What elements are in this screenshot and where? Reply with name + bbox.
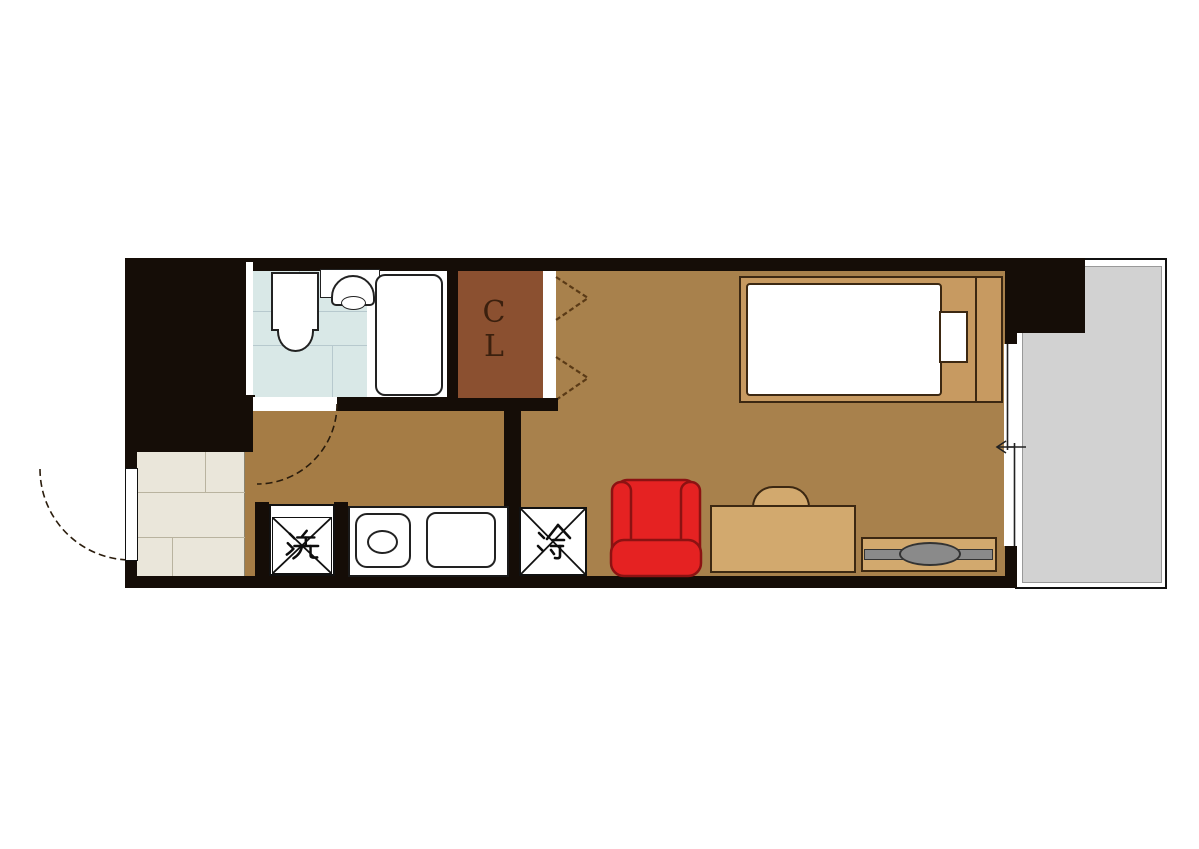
kitchen-wall-stub-left <box>255 502 269 576</box>
closet-door-chevron-icon <box>555 272 593 404</box>
bed-headboard-line <box>975 278 977 401</box>
kitchen-wall-stub-right <box>334 502 348 576</box>
floor-plan: CL 洗 <box>0 0 1199 849</box>
stove-burner <box>367 530 398 554</box>
refrigerator: 冷 <box>519 507 587 576</box>
wash-kanji-icon <box>283 527 321 565</box>
bathroom-closet-wall <box>447 262 458 398</box>
bed <box>739 276 1003 403</box>
tv <box>899 542 961 566</box>
desk-chair <box>752 486 810 507</box>
cold-kanji-icon <box>533 522 573 562</box>
kitchen-sink <box>426 512 496 568</box>
bathroom-grid-line <box>332 345 333 398</box>
balcony-corner-wall <box>1003 258 1085 333</box>
bathroom-left-wall <box>246 262 253 410</box>
bathroom-south-wall <box>337 397 458 411</box>
closet-south-wall <box>458 398 558 411</box>
bathroom-door-arc <box>250 398 344 492</box>
washing-machine-pan <box>272 517 332 574</box>
closet-label: CL <box>482 296 506 364</box>
entrance-grid-line <box>137 537 245 538</box>
bathtub <box>375 274 443 396</box>
entrance-genkan <box>137 452 245 576</box>
toilet-tank <box>271 272 319 331</box>
entrance-grid-line <box>205 452 206 492</box>
room-divider-wall <box>504 411 521 508</box>
entrance-grid-line <box>137 492 245 493</box>
entrance-door-leaf <box>125 468 138 561</box>
bed-pillow <box>939 311 968 363</box>
window-slide-arrow-icon <box>990 438 1028 456</box>
bathroom-grid-line <box>253 345 367 346</box>
washing-machine: 洗 <box>269 504 335 576</box>
washing-machine-label: 洗 <box>271 506 272 507</box>
desk <box>710 505 856 573</box>
entrance-door-arc <box>34 463 138 567</box>
entrance-grid-line <box>172 537 173 576</box>
bed-mattress <box>746 283 942 396</box>
washbasin-drain <box>341 296 366 310</box>
armchair <box>609 477 703 579</box>
